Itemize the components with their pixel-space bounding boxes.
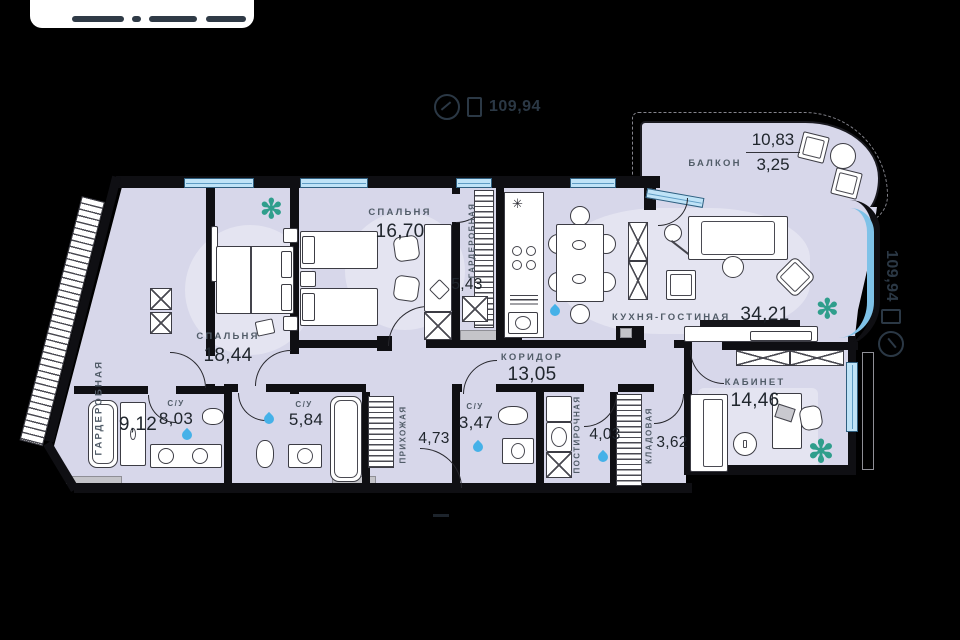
burner-icon — [512, 260, 522, 270]
plate — [572, 274, 586, 284]
laundry-box — [546, 452, 572, 478]
wall-bath-divider — [536, 392, 544, 486]
floor-plan-page: 109,94 109,94 — [0, 0, 960, 640]
dining-chair — [570, 206, 590, 226]
washer-drum — [551, 427, 567, 447]
balcony-railing — [862, 352, 874, 470]
room-area: 13,05 — [482, 364, 582, 386]
drawer-box — [462, 296, 488, 322]
room-area: 5,43 — [444, 276, 490, 294]
wardrobe-box — [736, 350, 790, 366]
chair — [392, 274, 420, 302]
study-balcony-door — [846, 362, 858, 432]
room-name: КАБИНЕТ — [705, 377, 805, 388]
entrance-tick — [433, 514, 449, 517]
sink-bowl — [192, 448, 208, 464]
wardrobe-box — [424, 312, 452, 340]
wall-wardrobe-kitchen — [496, 186, 504, 346]
shaft-box — [620, 328, 632, 338]
room-name: ГАРДЕРОБНАЯ — [94, 366, 105, 456]
wall-right — [848, 432, 856, 472]
plate — [572, 240, 586, 250]
wall-corridor-top — [426, 340, 646, 348]
wall-tv-shelf — [750, 331, 812, 341]
room-area: 4,03 — [580, 426, 630, 444]
shelf-unit — [628, 222, 648, 261]
bathtub — [330, 396, 362, 482]
room-area: 18,44 — [178, 345, 278, 367]
tub-basin — [334, 400, 358, 478]
wall-corridor-top — [290, 340, 382, 348]
room-name: КУХНЯ-ГОСТИНАЯ — [612, 312, 730, 323]
sink-bowl — [511, 443, 525, 459]
room-name: КОРИДОР — [482, 352, 582, 363]
balcony-table — [830, 143, 856, 169]
kitchen-label-row: КУХНЯ-ГОСТИНАЯ 34,21 — [612, 304, 789, 326]
room-name: С/У — [284, 400, 324, 409]
drawer-box — [150, 312, 172, 334]
burner-icon — [526, 246, 536, 256]
toilet — [256, 440, 274, 468]
burner-icon — [526, 260, 536, 270]
plant-icon: ✻ — [808, 436, 834, 467]
wall-corridor-top — [674, 340, 684, 348]
window — [184, 178, 254, 188]
room-area: 3,62 — [648, 434, 696, 452]
room-name: С/У — [156, 399, 196, 408]
pillow — [281, 284, 292, 311]
fridge-star-icon: ✳ — [512, 196, 523, 212]
laundry-cabinet — [546, 396, 572, 422]
sink — [502, 438, 534, 464]
room-name: БАЛКОН — [682, 158, 748, 169]
coffee-table — [666, 270, 696, 300]
room-area: 5,84 — [278, 410, 334, 430]
dining-chair — [570, 304, 590, 324]
wall-corridor-bottom — [452, 384, 462, 392]
washer — [546, 422, 572, 452]
kitchen-sink — [508, 312, 538, 334]
wall-bath-divider — [224, 392, 232, 486]
table-item — [743, 440, 747, 448]
round-table — [733, 432, 757, 456]
hall-closet — [368, 396, 394, 468]
chair-seat — [835, 172, 858, 195]
room-area: 16,70 — [350, 221, 450, 243]
room-area: 34,21 — [740, 304, 789, 326]
dining-table — [556, 224, 604, 302]
room-area: 14,46 — [705, 390, 805, 412]
chair-seat — [802, 136, 825, 159]
drawer-box — [150, 288, 172, 310]
balcony-areas: 10,83 3,25 — [746, 130, 800, 175]
room-area: 8,03 — [150, 409, 202, 429]
sink-bowl — [515, 316, 531, 330]
toilet — [202, 408, 224, 425]
shelf-unit — [628, 261, 648, 300]
sink-bowl — [297, 448, 313, 464]
plant-icon: ✻ — [816, 296, 839, 323]
nightstand — [283, 228, 298, 243]
window — [300, 178, 368, 188]
table-top — [670, 274, 692, 296]
room-name: СПАЛЬНЯ — [350, 207, 450, 218]
sink-bowl — [158, 448, 174, 464]
room-name: ГАРДЕРОБНАЯ — [468, 196, 477, 286]
floor-plan: ✻ ✳ — [0, 0, 960, 640]
wall-corridor-bottom — [224, 384, 238, 392]
pillow — [281, 251, 292, 278]
room-name: ПРИХОЖАЯ — [399, 390, 408, 480]
blanket-line — [250, 247, 252, 313]
room-name: С/У — [455, 402, 495, 411]
balcony-area-coeff: 3,25 — [746, 152, 800, 175]
sink — [288, 444, 322, 468]
nightstand — [283, 316, 298, 331]
toilet — [498, 406, 528, 425]
balcony-area-total: 10,83 — [746, 130, 800, 150]
window — [456, 178, 492, 188]
side-table — [722, 256, 744, 278]
nightstand — [300, 271, 316, 287]
wall-bottom — [74, 483, 692, 493]
wardrobe-box — [790, 350, 844, 366]
plant-icon: ✻ — [260, 196, 283, 223]
room-name: СПАЛЬНЯ — [178, 331, 278, 342]
window — [570, 178, 616, 188]
sofa — [688, 216, 788, 260]
floor-lamp — [664, 224, 682, 242]
oven — [510, 292, 538, 306]
sofa-cushions — [701, 221, 775, 255]
pillow — [302, 293, 315, 321]
wall-corridor-bottom — [618, 384, 654, 392]
room-area: 3,47 — [450, 413, 502, 433]
pillow — [302, 236, 315, 264]
wall-bath-top — [74, 386, 148, 394]
burner-icon — [512, 246, 522, 256]
curved-glazing — [838, 208, 874, 338]
wall-study-top — [722, 342, 858, 350]
